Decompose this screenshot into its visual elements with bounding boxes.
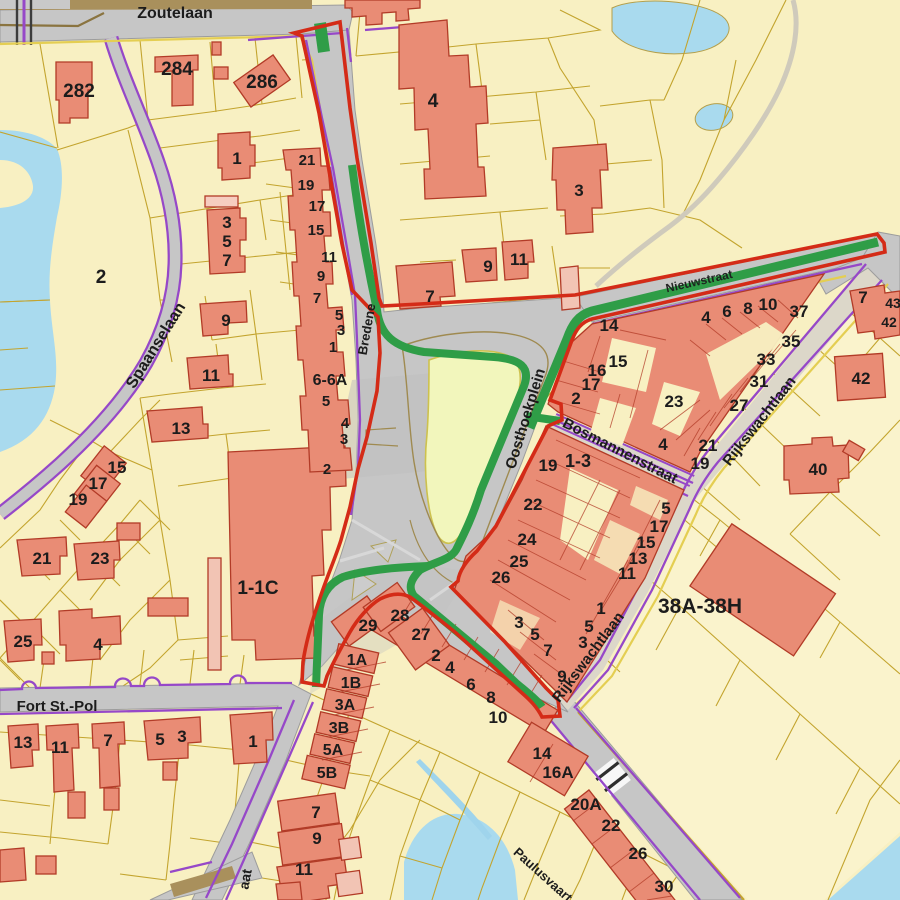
svg-text:1: 1 [329,339,337,356]
svg-text:23: 23 [665,392,684,411]
svg-text:17: 17 [89,474,108,493]
svg-text:3: 3 [574,181,583,200]
svg-text:26: 26 [492,568,511,587]
svg-text:5B: 5B [317,765,337,782]
svg-text:13: 13 [172,419,191,438]
svg-text:29: 29 [359,616,378,635]
svg-text:5: 5 [222,232,231,251]
svg-text:9: 9 [483,257,492,276]
svg-text:24: 24 [518,530,537,549]
svg-text:37: 37 [790,302,809,321]
svg-text:4: 4 [701,308,711,327]
svg-text:1-3: 1-3 [565,451,591,471]
svg-text:3: 3 [337,322,345,339]
svg-text:25: 25 [510,552,529,571]
svg-text:4: 4 [93,635,103,654]
svg-text:1: 1 [232,149,241,168]
svg-text:7: 7 [543,641,552,660]
svg-text:5: 5 [661,499,670,518]
svg-text:19: 19 [298,177,315,194]
svg-text:Zoutelaan: Zoutelaan [137,5,213,22]
svg-text:4: 4 [658,435,668,454]
svg-text:21: 21 [699,436,718,455]
svg-text:11: 11 [295,860,313,879]
svg-text:22: 22 [602,816,621,835]
svg-text:4: 4 [445,658,455,677]
svg-text:11: 11 [510,250,528,269]
svg-text:19: 19 [691,454,710,473]
svg-text:28: 28 [391,606,410,625]
svg-text:40: 40 [809,460,828,479]
svg-text:35: 35 [782,332,801,351]
svg-text:38A-38H: 38A-38H [658,595,742,618]
svg-text:4: 4 [428,91,439,112]
svg-text:11: 11 [321,249,337,266]
svg-text:10: 10 [759,295,778,314]
svg-text:1: 1 [248,732,257,751]
svg-text:6-6A: 6-6A [313,372,348,389]
svg-text:15: 15 [108,458,127,477]
svg-text:3A: 3A [335,697,356,714]
svg-text:42: 42 [852,369,871,388]
svg-text:14: 14 [533,744,552,763]
svg-text:1-1C: 1-1C [237,578,278,599]
svg-text:22: 22 [524,495,543,514]
svg-text:13: 13 [14,733,33,752]
svg-text:5: 5 [155,730,164,749]
svg-text:282: 282 [63,81,95,102]
svg-text:1B: 1B [341,675,361,692]
svg-text:33: 33 [757,350,776,369]
svg-text:20A: 20A [570,795,601,814]
svg-text:14: 14 [600,316,619,335]
svg-text:3: 3 [177,727,186,746]
svg-text:3B: 3B [329,720,349,737]
svg-text:27: 27 [730,396,749,415]
svg-text:1A: 1A [347,652,368,669]
svg-text:19: 19 [69,490,88,509]
svg-text:15: 15 [609,352,628,371]
svg-text:11: 11 [618,564,636,583]
svg-text:8: 8 [743,299,752,318]
svg-text:2: 2 [571,389,580,408]
svg-text:9: 9 [312,829,321,848]
svg-text:7: 7 [858,288,867,307]
svg-text:9: 9 [221,311,230,330]
svg-text:Fort St.-Pol: Fort St.-Pol [17,698,98,715]
svg-text:11: 11 [202,366,220,385]
svg-text:3: 3 [340,431,348,448]
svg-text:27: 27 [412,625,431,644]
svg-text:3: 3 [222,213,231,232]
svg-text:21: 21 [299,152,316,169]
svg-text:10: 10 [489,708,508,727]
svg-text:21: 21 [33,549,52,568]
svg-text:23: 23 [91,549,110,568]
svg-text:7: 7 [311,803,320,822]
svg-text:4: 4 [341,415,350,432]
svg-text:11: 11 [51,738,69,757]
svg-text:5A: 5A [323,742,344,759]
svg-text:7: 7 [313,290,321,307]
svg-text:26: 26 [629,844,648,863]
svg-text:19: 19 [539,456,558,475]
svg-text:2: 2 [96,267,107,288]
svg-text:15: 15 [308,222,325,239]
svg-text:6: 6 [722,302,731,321]
svg-text:7: 7 [103,731,112,750]
svg-text:1: 1 [596,599,605,618]
svg-text:286: 286 [246,72,278,93]
svg-text:8: 8 [486,688,495,707]
svg-text:17: 17 [582,375,601,394]
svg-text:5: 5 [530,625,539,644]
svg-text:43: 43 [885,295,900,311]
svg-text:3: 3 [514,613,523,632]
svg-text:284: 284 [161,59,193,80]
svg-text:17: 17 [309,198,326,215]
svg-text:16A: 16A [542,763,573,782]
svg-text:30: 30 [655,877,674,896]
svg-text:9: 9 [317,268,325,285]
svg-text:5: 5 [322,393,330,410]
svg-text:42: 42 [881,314,897,330]
svg-text:2: 2 [431,646,440,665]
svg-text:31: 31 [750,372,769,391]
svg-text:6: 6 [466,675,475,694]
svg-text:25: 25 [14,632,33,651]
svg-text:7: 7 [425,287,434,306]
svg-text:7: 7 [222,251,231,270]
svg-text:2: 2 [323,461,331,478]
